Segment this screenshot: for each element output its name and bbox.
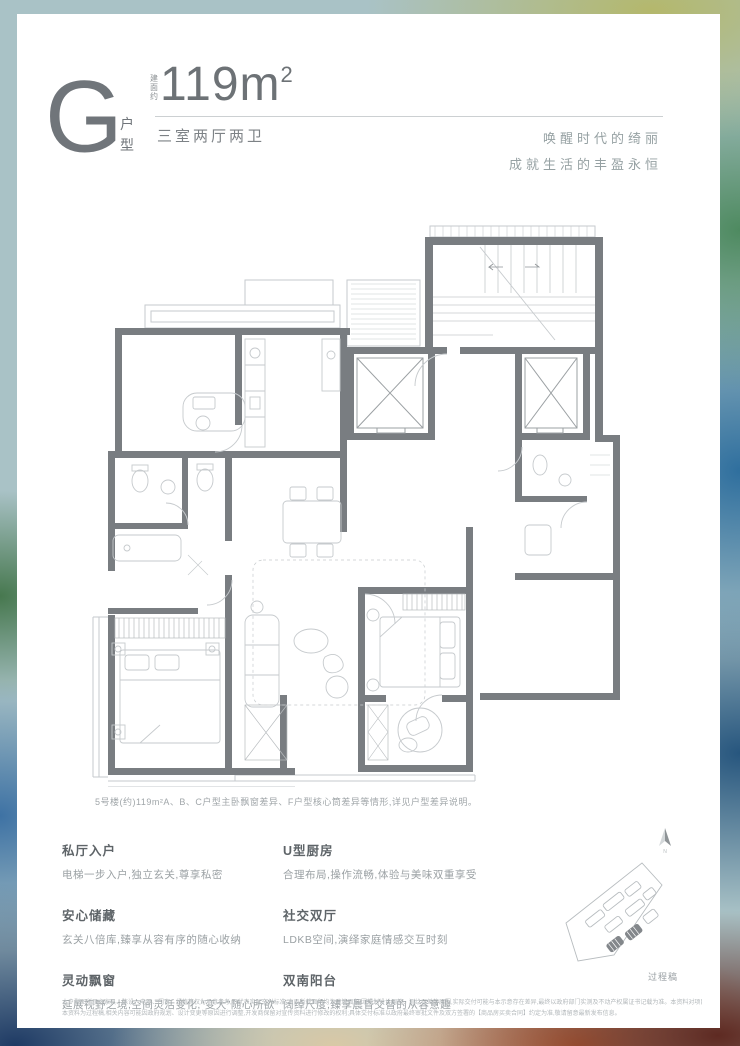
feature-item: U型厨房 合理布局,操作流畅,体验与美味双重享受 — [283, 840, 513, 882]
draft-watermark: 过程稿 — [648, 970, 678, 983]
area-value: 119m2 — [160, 57, 294, 112]
feature-item: 社交双厅 LDKB空间,演绎家庭情感交互时刻 — [283, 905, 513, 947]
disclaimer-line-1: 本户型图所示之家具、陈设、电器、门窗、绿植等仅为示意参考,不代表实际交付标准;本… — [62, 998, 702, 1009]
plan-difference-note: 5号楼(约)119m²A、B、C户型主卧飘窗差异、F户型核心筒差异等情形,详见户… — [95, 795, 477, 808]
feature-item: 安心储藏 玄关八倍库,臻享从容有序的随心收纳 — [62, 905, 292, 947]
slogan-line-1: 唤醒时代的绮丽 — [509, 126, 662, 152]
feature-desc: 玄关八倍库,臻享从容有序的随心收纳 — [62, 932, 292, 947]
feature-title: 安心储藏 — [62, 905, 292, 924]
floor-plan-drawing — [85, 225, 660, 787]
slogan-line-2: 成就生活的丰盈永恒 — [509, 152, 662, 178]
legal-disclaimer: 本户型图所示之家具、陈设、电器、门窗、绿植等仅为示意参考,不代表实际交付标准;本… — [62, 998, 702, 1021]
header-divider — [155, 116, 663, 117]
slogan-block: 唤醒时代的绮丽 成就生活的丰盈永恒 — [509, 126, 662, 178]
feature-desc: LDKB空间,演绎家庭情感交互时刻 — [283, 932, 513, 947]
feature-title: U型厨房 — [283, 840, 513, 859]
feature-title: 双南阳台 — [283, 970, 513, 989]
feature-desc: 合理布局,操作流畅,体验与美味双重享受 — [283, 867, 513, 882]
area-exponent: 2 — [281, 62, 294, 87]
feature-title: 社交双厅 — [283, 905, 513, 924]
disclaimer-line-2: 本资料为过程稿,相关内容可能因政府规划、设计变更等原因进行调整,开发商保留对宣传… — [62, 1009, 702, 1020]
area-label: 建面约 — [150, 74, 159, 102]
unit-type-suffix: 户型 — [120, 114, 136, 156]
area-number: 119m — [160, 58, 281, 111]
unit-type-letter: G — [45, 59, 123, 176]
north-arrow-icon: N — [655, 826, 675, 854]
feature-title: 私厅入户 — [62, 840, 292, 859]
feature-title: 灵动飘窗 — [62, 970, 292, 989]
floorplan-card: G 户型 建面约 119m2 三室两厅两卫 唤醒时代的绮丽 成就生活的丰盈永恒 — [17, 14, 720, 1028]
feature-desc: 电梯一步入户,独立玄关,尊享私密 — [62, 867, 292, 882]
svg-text:N: N — [663, 849, 667, 854]
feature-item: 私厅入户 电梯一步入户,独立玄关,尊享私密 — [62, 840, 292, 882]
room-configuration: 三室两厅两卫 — [157, 125, 265, 146]
site-plan-diagram — [558, 857, 678, 969]
